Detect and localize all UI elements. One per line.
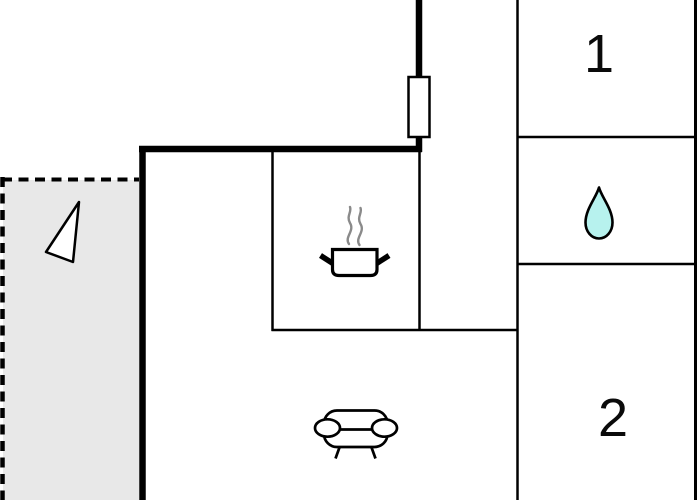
pot-body: [333, 250, 378, 276]
window-icon: [409, 77, 430, 137]
bedroom-2-label: 2: [598, 388, 628, 448]
bedroom-2-area: [519, 265, 695, 500]
hallway-area: [422, 0, 517, 330]
floor-plan: 1 2: [0, 0, 700, 500]
floor-plan-drawing: 1 2: [0, 0, 700, 500]
sofa-armrest-right: [372, 419, 397, 436]
bathroom-area: [519, 138, 695, 263]
sofa-armrest-left: [315, 419, 340, 436]
bedroom-1-label: 1: [584, 24, 614, 84]
